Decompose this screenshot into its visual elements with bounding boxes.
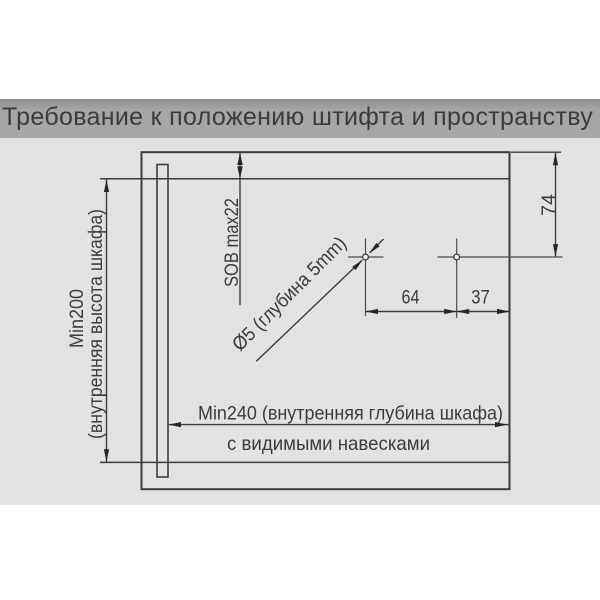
svg-text:с видимыми навесками: с видимыми навесками: [227, 433, 430, 455]
svg-text:Min240 (внутренняя глубина шка: Min240 (внутренняя глубина шкафа): [198, 403, 503, 425]
svg-text:37: 37: [471, 287, 490, 309]
svg-text:74: 74: [538, 194, 560, 216]
svg-text:Ø5 (глубина 5mm): Ø5 (глубина 5mm): [228, 232, 351, 355]
svg-text:SOB max22: SOB max22: [221, 198, 243, 287]
svg-text:(внутренняя высота шкафа): (внутренняя высота шкафа): [85, 209, 107, 439]
svg-text:64: 64: [402, 287, 420, 309]
